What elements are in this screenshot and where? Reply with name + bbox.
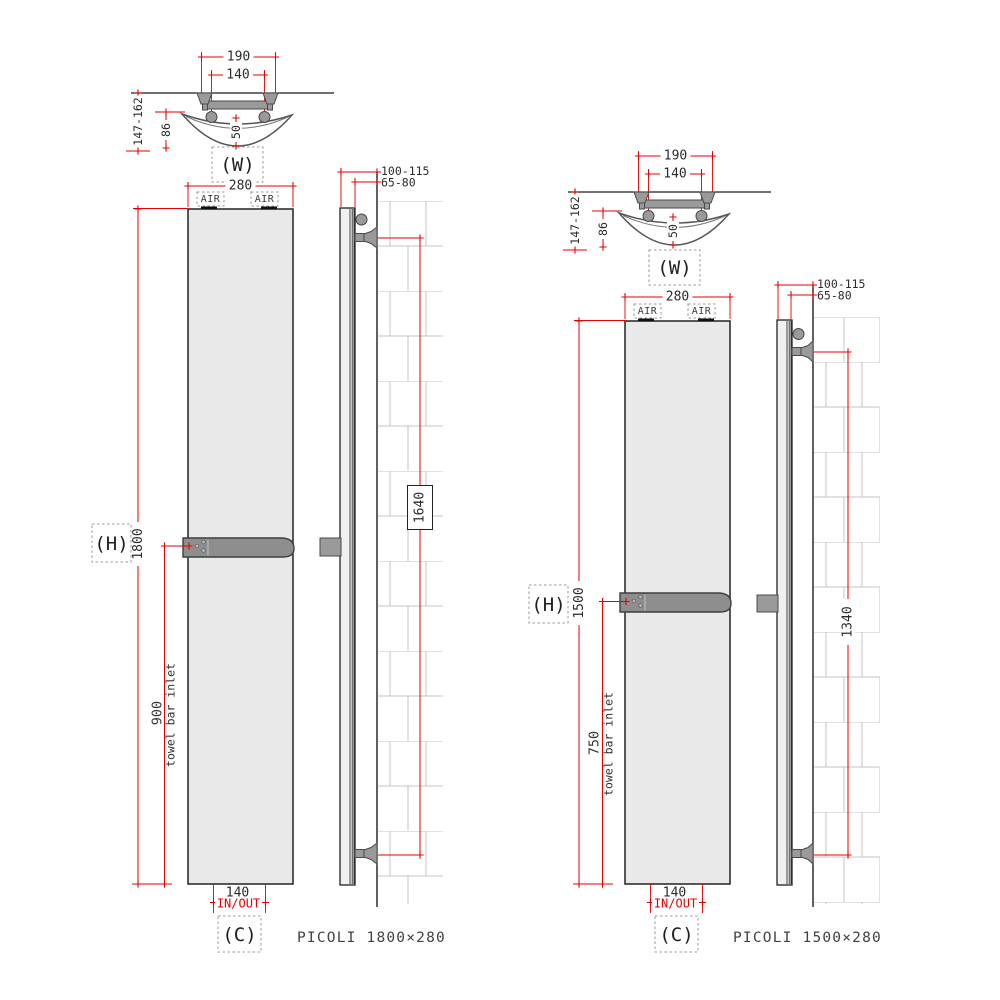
bracket-foot-left bbox=[640, 203, 645, 209]
dim-label-bracket-inner: 140 bbox=[663, 167, 686, 182]
dim-label-height-group: 1500 bbox=[572, 581, 587, 625]
connection-label-inout: IN/OUT bbox=[217, 897, 260, 911]
ref-label-h: (H) bbox=[531, 594, 565, 616]
connection-label-inout: IN/OUT bbox=[654, 897, 697, 911]
air-label-right: AIR bbox=[692, 306, 712, 317]
wall-bracket-top-side bbox=[801, 341, 813, 362]
dim-label-bracket-centres: 1340 bbox=[841, 606, 856, 637]
air-vent-left bbox=[201, 207, 217, 210]
bracket-stem-bottom bbox=[355, 850, 364, 858]
wall-bracket-top-side bbox=[364, 227, 377, 248]
pipe-connection-right bbox=[259, 112, 270, 123]
towel-bar-screw bbox=[632, 599, 636, 603]
dim-label-bracket-centres: 1640 bbox=[413, 492, 428, 523]
towel-bar-screw bbox=[202, 549, 206, 553]
towel-bar bbox=[620, 593, 731, 612]
air-vent-right bbox=[261, 207, 277, 210]
mounting-bar bbox=[642, 200, 708, 208]
dim-label-curve-depth-group: 50 bbox=[666, 221, 680, 241]
bracket-stem-top bbox=[792, 348, 801, 356]
air-vent-left bbox=[638, 319, 654, 322]
air-label-right: AIR bbox=[255, 194, 275, 205]
towel-bar-note: towel bar inlet bbox=[602, 692, 616, 796]
towel-bar-note: towel bar inlet bbox=[164, 663, 178, 767]
dim-label-wall-to-back: 65-80 bbox=[381, 176, 416, 190]
dim-label-curve-depth: 50 bbox=[666, 224, 680, 238]
ref-label-h: (H) bbox=[94, 533, 128, 555]
ref-label-c: (C) bbox=[659, 924, 693, 946]
top-view-1500: 190 140 147-162 86 bbox=[563, 149, 771, 286]
wall-bracket-bottom-side bbox=[801, 843, 813, 864]
air-label-left: AIR bbox=[638, 306, 658, 317]
radiator-panel-side bbox=[777, 320, 792, 885]
radiator-installation-drawing: 190 140 147-162 86 bbox=[0, 0, 1000, 1000]
dim-label-width: 280 bbox=[229, 179, 252, 194]
dim-label-height: 1500 bbox=[572, 587, 587, 618]
side-view-1800: 100-115 65-80 1640 bbox=[320, 164, 443, 907]
dim-label-pipe-depth: 86 bbox=[596, 222, 610, 236]
dim-label-bracket-outer: 190 bbox=[664, 149, 687, 164]
dim-label-curve-depth: 50 bbox=[229, 125, 243, 139]
technical-drawing-page: 190 140 147-162 86 bbox=[0, 0, 1000, 1000]
bracket-foot-right bbox=[705, 203, 710, 209]
air-label-left: AIR bbox=[201, 194, 221, 205]
pipe-connection-left bbox=[206, 112, 217, 123]
towel-bar-screw bbox=[639, 604, 643, 608]
view-label-w: (W) bbox=[657, 257, 691, 279]
diagram-caption: PICOLI 1800×280 bbox=[297, 930, 446, 946]
dim-label-wall-to-back: 65-80 bbox=[817, 289, 852, 303]
dim-label-depth-range: 147-162 bbox=[131, 97, 145, 145]
diagram-picoli-1500: 190 140 147-162 86 bbox=[529, 149, 882, 953]
bracket-stem-top bbox=[355, 234, 364, 242]
side-view-1500: 100-115 65-80 1340 bbox=[757, 277, 880, 907]
air-valve-knob bbox=[356, 214, 367, 225]
dim-label-width: 280 bbox=[666, 290, 689, 305]
towel-bar bbox=[183, 538, 294, 557]
dim-label-pipe-depth: 86 bbox=[159, 123, 173, 137]
towel-bar-body bbox=[183, 538, 294, 557]
dim-label-towel-bar-height: 750 bbox=[587, 731, 603, 755]
towel-bar-screw bbox=[195, 544, 199, 548]
top-view-1800: 190 140 147-162 86 bbox=[126, 50, 334, 183]
bracket-foot-left bbox=[203, 104, 208, 110]
towel-bar-body bbox=[620, 593, 731, 612]
diagram-picoli-1800: 190 140 147-162 86 bbox=[92, 50, 446, 953]
dim-label-depth-range-group: 147-162 bbox=[568, 195, 582, 247]
dim-label-pipe-depth-group: 86 bbox=[159, 120, 173, 140]
mounting-bar bbox=[205, 101, 271, 109]
dim-label-height: 1800 bbox=[131, 528, 146, 559]
view-label-w: (W) bbox=[220, 154, 254, 176]
bracket-stem-bottom bbox=[792, 850, 801, 858]
dim-label-depth-range: 147-162 bbox=[568, 196, 582, 244]
radiator-panel-side bbox=[340, 208, 355, 885]
towel-bar-screw bbox=[202, 540, 206, 544]
pipe-connection-left bbox=[643, 211, 654, 222]
dim-label-depth-range-group: 147-162 bbox=[131, 96, 145, 148]
towel-bar-screw bbox=[639, 595, 643, 599]
brick-wall bbox=[378, 201, 443, 904]
dim-label-bracket-inner: 140 bbox=[226, 68, 249, 83]
wall-bracket-bottom-side bbox=[364, 843, 377, 864]
dim-label-pipe-depth-group: 86 bbox=[596, 219, 610, 239]
diagram-caption: PICOLI 1500×280 bbox=[733, 930, 882, 946]
air-vent-right bbox=[698, 319, 714, 322]
dim-label-height-group: 1800 bbox=[131, 522, 146, 566]
pipe-connection-right bbox=[696, 211, 707, 222]
bracket-foot-right bbox=[268, 104, 273, 110]
towel-bar-side-stub bbox=[320, 538, 341, 556]
towel-bar-side-stub bbox=[757, 595, 778, 612]
dim-label-bracket-outer: 190 bbox=[227, 50, 250, 65]
ref-label-c: (C) bbox=[222, 924, 256, 946]
air-valve-knob bbox=[793, 329, 804, 340]
dim-label-curve-depth-group: 50 bbox=[229, 122, 243, 142]
